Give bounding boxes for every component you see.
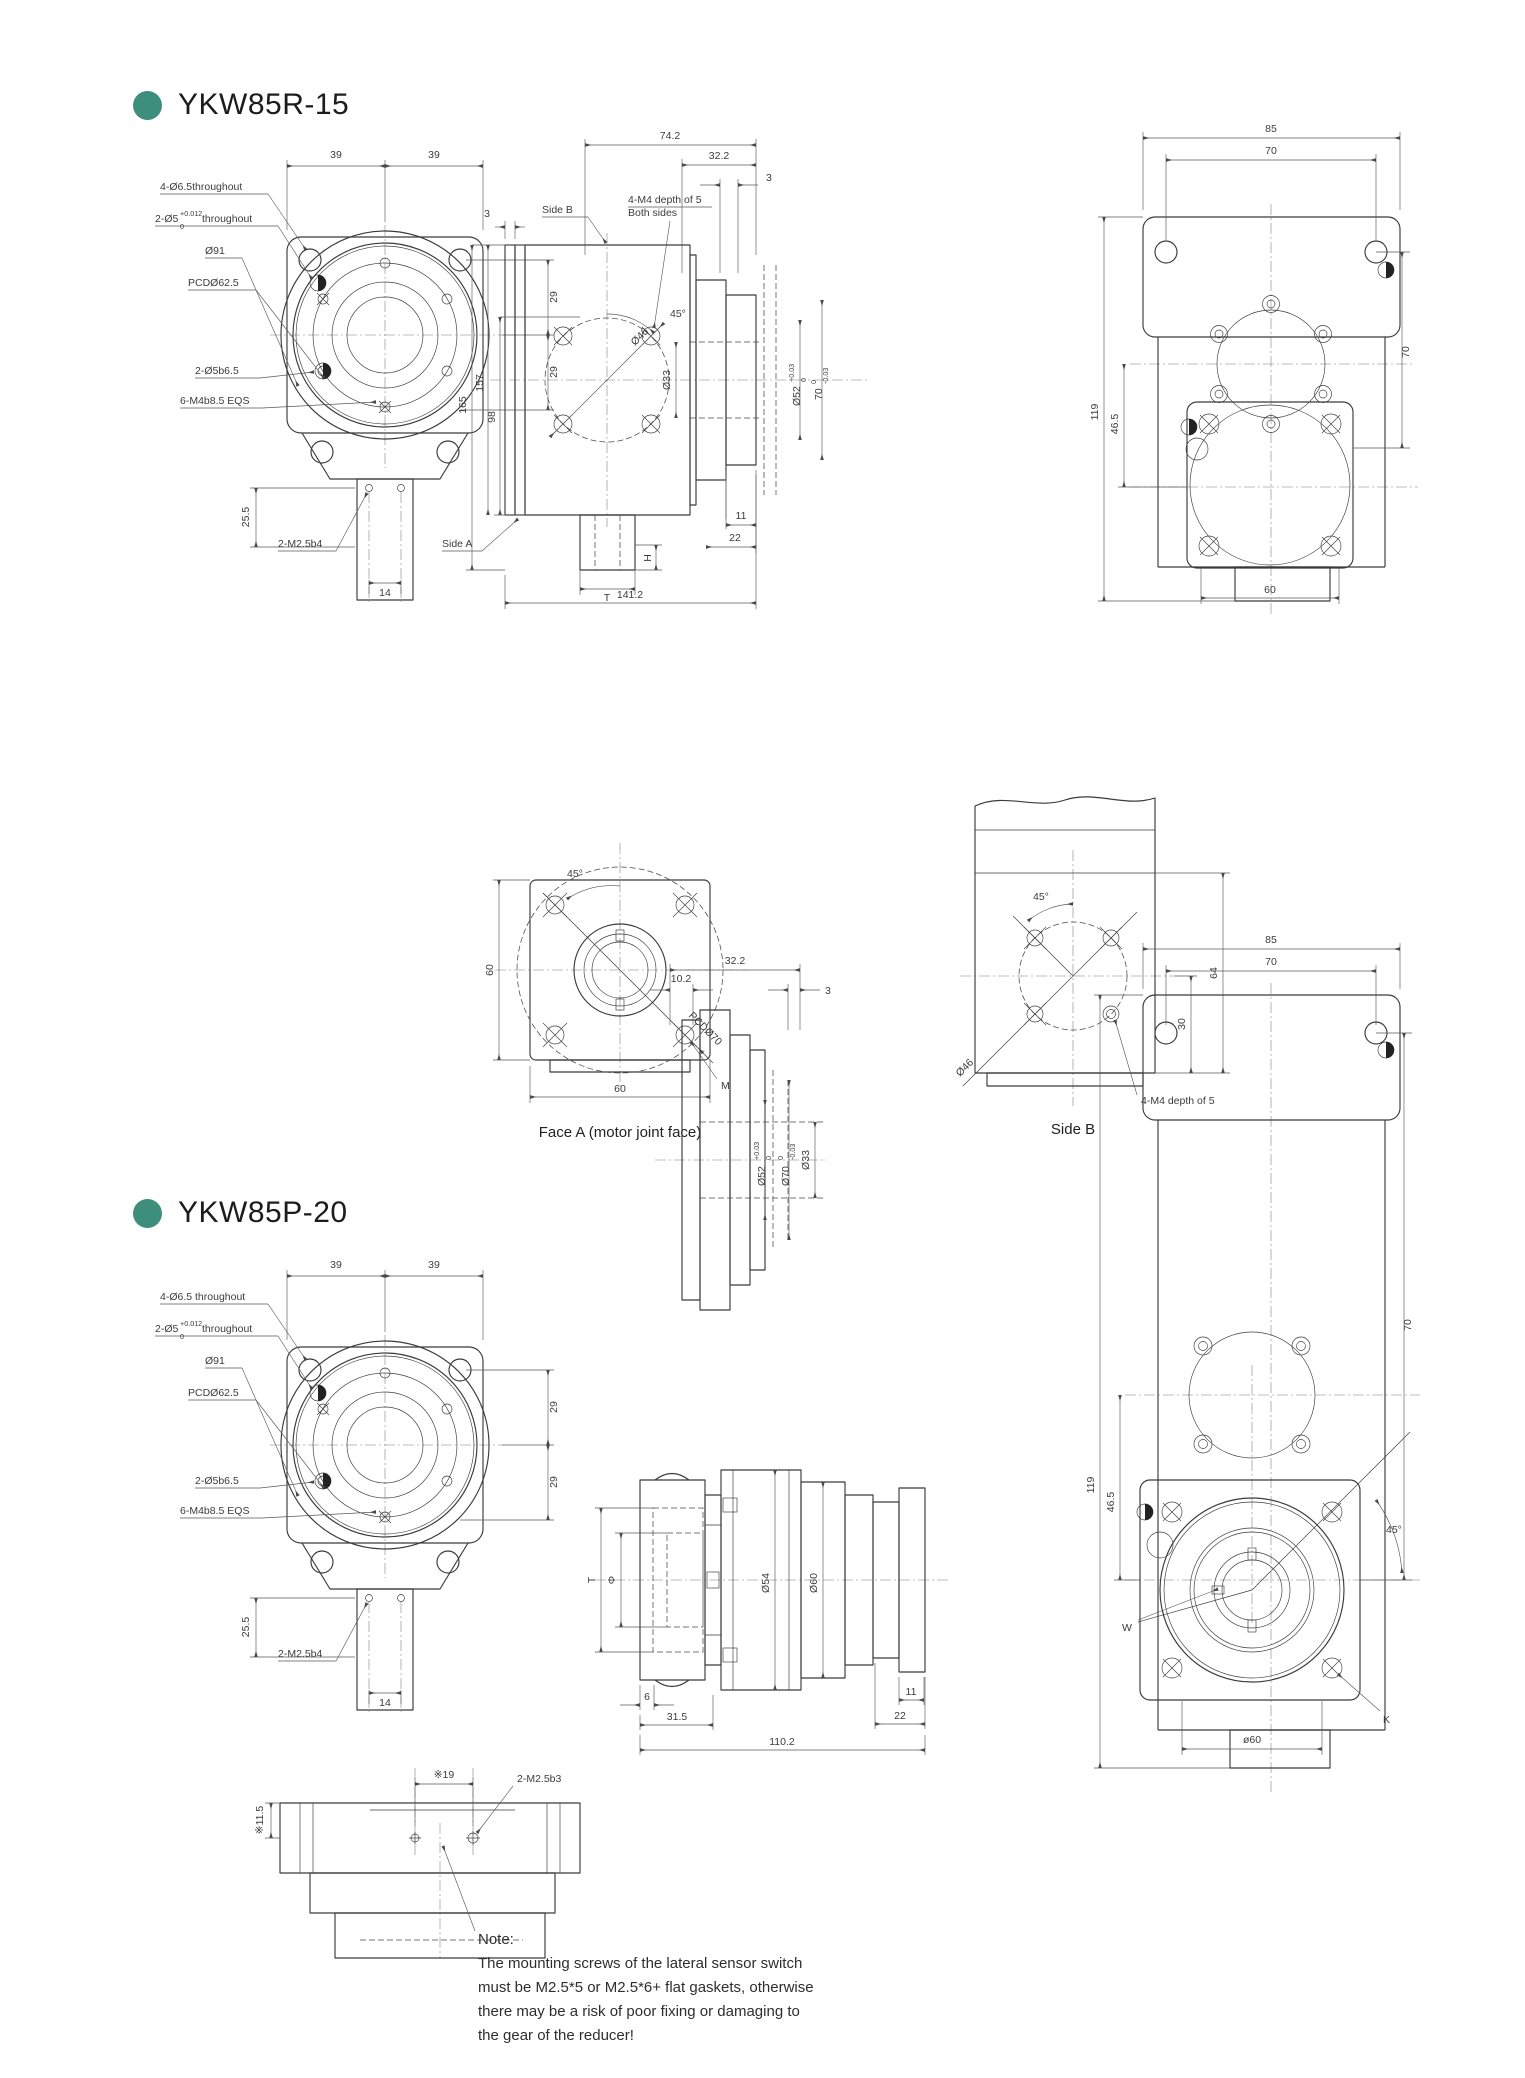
dim: 45°: [1033, 891, 1049, 903]
note-line: must be M2.5*5 or M2.5*6+ flat gaskets, …: [478, 1979, 814, 1996]
dim: 25.5: [240, 1617, 252, 1638]
section-title: YKW85P-20: [178, 1196, 348, 1230]
dim: 46.5: [1105, 1492, 1117, 1513]
label-pin-holes: 2-Ø5: [155, 1323, 179, 1335]
dim-sub: -0.03: [788, 1144, 797, 1160]
dim: 98: [486, 411, 498, 423]
label-pcd: PCDØ62.5: [188, 1387, 239, 1399]
dim: 141.2: [617, 589, 643, 601]
dim: 11: [906, 1686, 917, 1698]
label-pcd: PCDØ62.5: [188, 277, 239, 289]
dim: Ø70: [780, 1166, 792, 1186]
p20-right-body: [1140, 995, 1400, 1768]
dim: ø60: [1243, 1734, 1261, 1746]
label-bottom-screws: 2-M2.5b4: [278, 1648, 323, 1660]
label-outer-dia: Ø91: [205, 1355, 225, 1367]
label-pin-tol-sup: +0.012: [180, 209, 202, 218]
dim: 70: [1265, 145, 1277, 157]
dim: Ø52: [791, 386, 803, 406]
label-screws: 2-M2.5b3: [517, 1773, 562, 1785]
dim: 45°: [567, 868, 583, 880]
note-line: there may be a risk of poor fixing or da…: [478, 2003, 800, 2020]
dim: 70: [1265, 956, 1277, 968]
label-pin-tol-sub: 0: [180, 1332, 184, 1341]
r15-right-datum-markers: [1181, 262, 1394, 435]
dim-sup: +0.03: [752, 1142, 761, 1160]
p20-inline-view: 32.2 10.2 3 Ø52 +0.03 0 Ø70 0 -0.03 Ø33: [455, 950, 1125, 1780]
r15-right-view: 85 70 119 46.5 70 60: [1080, 112, 1425, 622]
dim: 74.2: [660, 130, 681, 142]
dim: 14: [379, 1697, 391, 1709]
label-pins: 2-Ø5b6.5: [195, 1475, 239, 1487]
dim: 119: [1089, 403, 1101, 420]
label-corner-holes: 4-Ø6.5 throughout: [160, 1291, 245, 1303]
dim-d70-group: Ø70 0 -0.03: [776, 1144, 797, 1186]
section-title: YKW85R-15: [178, 88, 349, 122]
r15-section-body: [505, 245, 756, 570]
dim-sub: -0.03: [821, 368, 830, 384]
label-key: K: [1383, 1714, 1390, 1726]
note-title: Note:: [478, 1931, 514, 1948]
sensor-dims: [265, 1778, 513, 1931]
dim: 10.2: [671, 973, 692, 985]
dim: 22: [894, 1710, 906, 1722]
dim-sub: 0: [764, 1156, 773, 1160]
label-tapped: 6-M4b8.5 EQS: [180, 395, 249, 407]
drawing-sheet: YKW85R-15 39 39 29 29 25: [0, 0, 1525, 2078]
dim: 85: [1265, 123, 1277, 135]
dim: Ø33: [661, 370, 673, 390]
section-bullet-icon: [133, 91, 162, 120]
dim: ※19: [434, 1769, 455, 1781]
dim: 6: [644, 1691, 650, 1703]
dim-d52-group: Ø52 +0.03 0: [752, 1142, 773, 1186]
dim-sub: 0: [799, 378, 808, 382]
dim: ※11.5: [254, 1806, 266, 1835]
sensor-note: Note: The mounting screws of the lateral…: [478, 1931, 814, 2044]
dim: 32.2: [709, 150, 730, 162]
dim-sup: +0.03: [787, 364, 796, 382]
section-header-1: YKW85R-15: [133, 88, 349, 122]
dim: 3: [484, 208, 490, 220]
label-pin-suffix: throughout: [202, 213, 252, 225]
r15-right-details: [1186, 296, 1350, 566]
dim: 3: [766, 172, 772, 184]
p20-right-details: [1138, 1332, 1410, 1678]
dim: 3: [825, 985, 831, 997]
dim: 32.2: [725, 955, 746, 967]
dim: 45°: [670, 308, 686, 320]
dim-d52-group: Ø52 +0.03 0: [787, 364, 808, 406]
p20-right-datum-markers: [1137, 1042, 1394, 1520]
dim: 60: [1264, 584, 1276, 596]
dim-sup: 0: [776, 1156, 785, 1160]
note-line: The mounting screws of the lateral senso…: [478, 1955, 802, 1972]
dim: 119: [1085, 1476, 1097, 1493]
dim: Ø33: [800, 1150, 812, 1170]
dim: 165: [457, 396, 469, 414]
label-pin-tol-sub: 0: [180, 222, 184, 231]
dim: 22: [729, 532, 741, 544]
dim: H: [642, 554, 654, 562]
label-pin-tol-sup: +0.012: [180, 1319, 202, 1328]
section-bullet-icon: [133, 1199, 162, 1228]
dim: 39: [330, 149, 342, 161]
label-tapped: 6-M4b8.5 EQS: [180, 1505, 249, 1517]
label-side-b: Side B: [542, 204, 573, 216]
p20-flange-dims: [650, 964, 820, 1240]
dim: 157: [474, 374, 486, 392]
note-line: the gear of the reducer!: [478, 2027, 634, 2044]
label-side-a: Side A: [442, 538, 472, 550]
dim: Ø52: [756, 1166, 768, 1186]
dim: Φ: [606, 1576, 618, 1584]
dim: T: [604, 592, 611, 604]
dim: 31.5: [667, 1711, 688, 1723]
dim: Ø54: [760, 1573, 772, 1593]
section-header-2: YKW85P-20: [133, 1196, 348, 1230]
label-pins: 2-Ø5b6.5: [195, 365, 239, 377]
r15-right-dims: [1098, 132, 1410, 604]
dim: Ø60: [808, 1573, 820, 1593]
p20-right-dims: [1094, 943, 1412, 1768]
label-m4-2: Both sides: [628, 207, 677, 219]
dim: 45°: [1386, 1524, 1402, 1536]
sensor-details: [300, 1803, 560, 1873]
label-corner-holes: 4-Ø6.5throughout: [160, 181, 242, 193]
dim: 85: [1265, 934, 1277, 946]
dim-sup: 0: [809, 380, 818, 384]
dim: 39: [330, 1259, 342, 1271]
r15-right-body: [1143, 217, 1400, 601]
label-m4-1: 4-M4 depth of 5: [628, 194, 702, 206]
dim: 14: [379, 587, 391, 599]
dim: 70: [1400, 346, 1412, 358]
dim: 70: [813, 388, 825, 400]
label-outer-dia: Ø91: [205, 245, 225, 257]
label-bottom-screws: 2-M2.5b4: [278, 538, 323, 550]
p20-gearhead-dims: [595, 1470, 925, 1755]
dim: T: [586, 1576, 598, 1583]
r15-section-view: 74.2 32.2 3 3 165 157 98 Ø33 Ø52 +0.03 0…: [430, 115, 890, 620]
dim: 25.5: [240, 507, 252, 528]
label-pin-holes: 2-Ø5: [155, 213, 179, 225]
p20-right-view: 85 70 119 46.5 70 45° W K ø60: [1080, 925, 1425, 1805]
dim: 46.5: [1109, 414, 1121, 435]
dim-d70-group: 70 0 -0.03: [809, 368, 830, 400]
sensor-body: [280, 1803, 580, 1958]
dim: 70: [1402, 1319, 1414, 1331]
dim: 39: [428, 1259, 440, 1271]
label-pin-suffix: throughout: [202, 1323, 252, 1335]
dim: 11: [736, 510, 747, 522]
p20-sensor-view: ※19 ※11.5 2-M2.5b3 Note: The mounting sc…: [225, 1728, 835, 2073]
label-key-width: W: [1122, 1622, 1132, 1634]
